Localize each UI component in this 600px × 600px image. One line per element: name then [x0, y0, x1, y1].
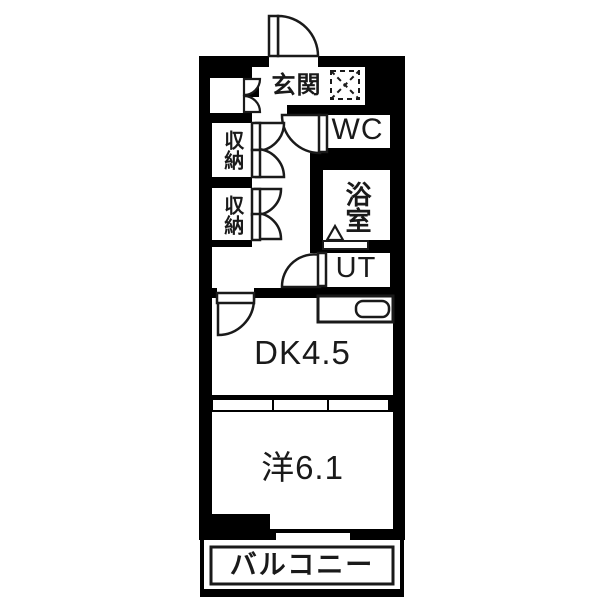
- bath-threshold: [323, 241, 368, 249]
- label-wc: WC: [325, 114, 390, 145]
- entrance-opening: [269, 56, 318, 67]
- label-ut: UT: [322, 253, 390, 283]
- label-dk: DK4.5: [212, 336, 393, 370]
- label-storage-lower: 収納: [221, 192, 242, 238]
- label-bath: 浴室: [343, 177, 370, 237]
- label-western: 洋6.1: [212, 451, 393, 485]
- kitchen-counter-icon: [318, 296, 393, 322]
- wall-step: [212, 514, 270, 540]
- label-storage-upper: 収納: [221, 127, 242, 173]
- floorplan-canvas: 玄関 WC 浴室 UT 収納 収納 DK4.5 洋6.1 バルコニー: [0, 0, 600, 600]
- room-closet-top-floor: [210, 78, 243, 113]
- entrance-door-icon: [269, 16, 318, 56]
- label-balcony: バルコニー: [211, 551, 393, 579]
- label-genkan: 玄関: [254, 74, 339, 99]
- kitchen-sink-icon: [356, 301, 389, 317]
- sliding-doors-icon: [213, 400, 388, 410]
